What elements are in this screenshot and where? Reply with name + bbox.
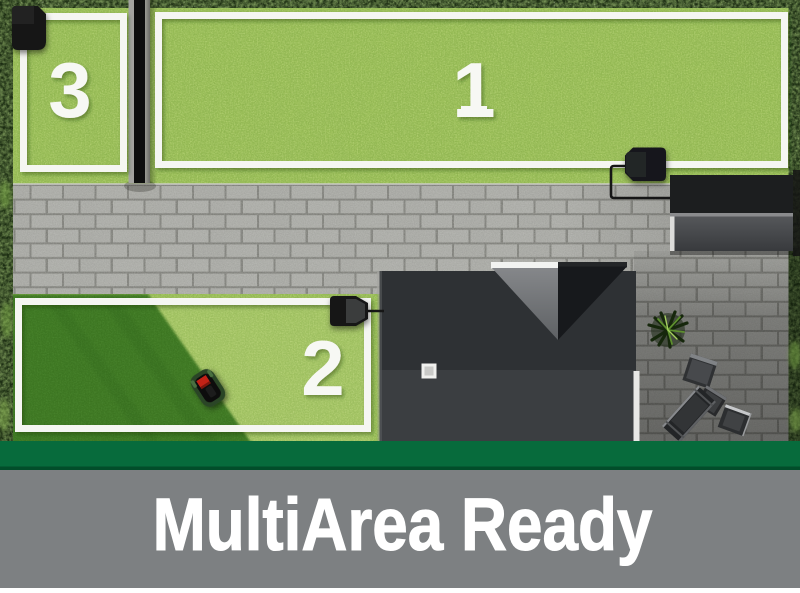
svg-text:MultiArea Ready: MultiArea Ready <box>153 483 653 567</box>
svg-text:3: 3 <box>48 46 91 134</box>
svg-text:2: 2 <box>301 324 344 412</box>
svg-text:1: 1 <box>452 46 495 134</box>
